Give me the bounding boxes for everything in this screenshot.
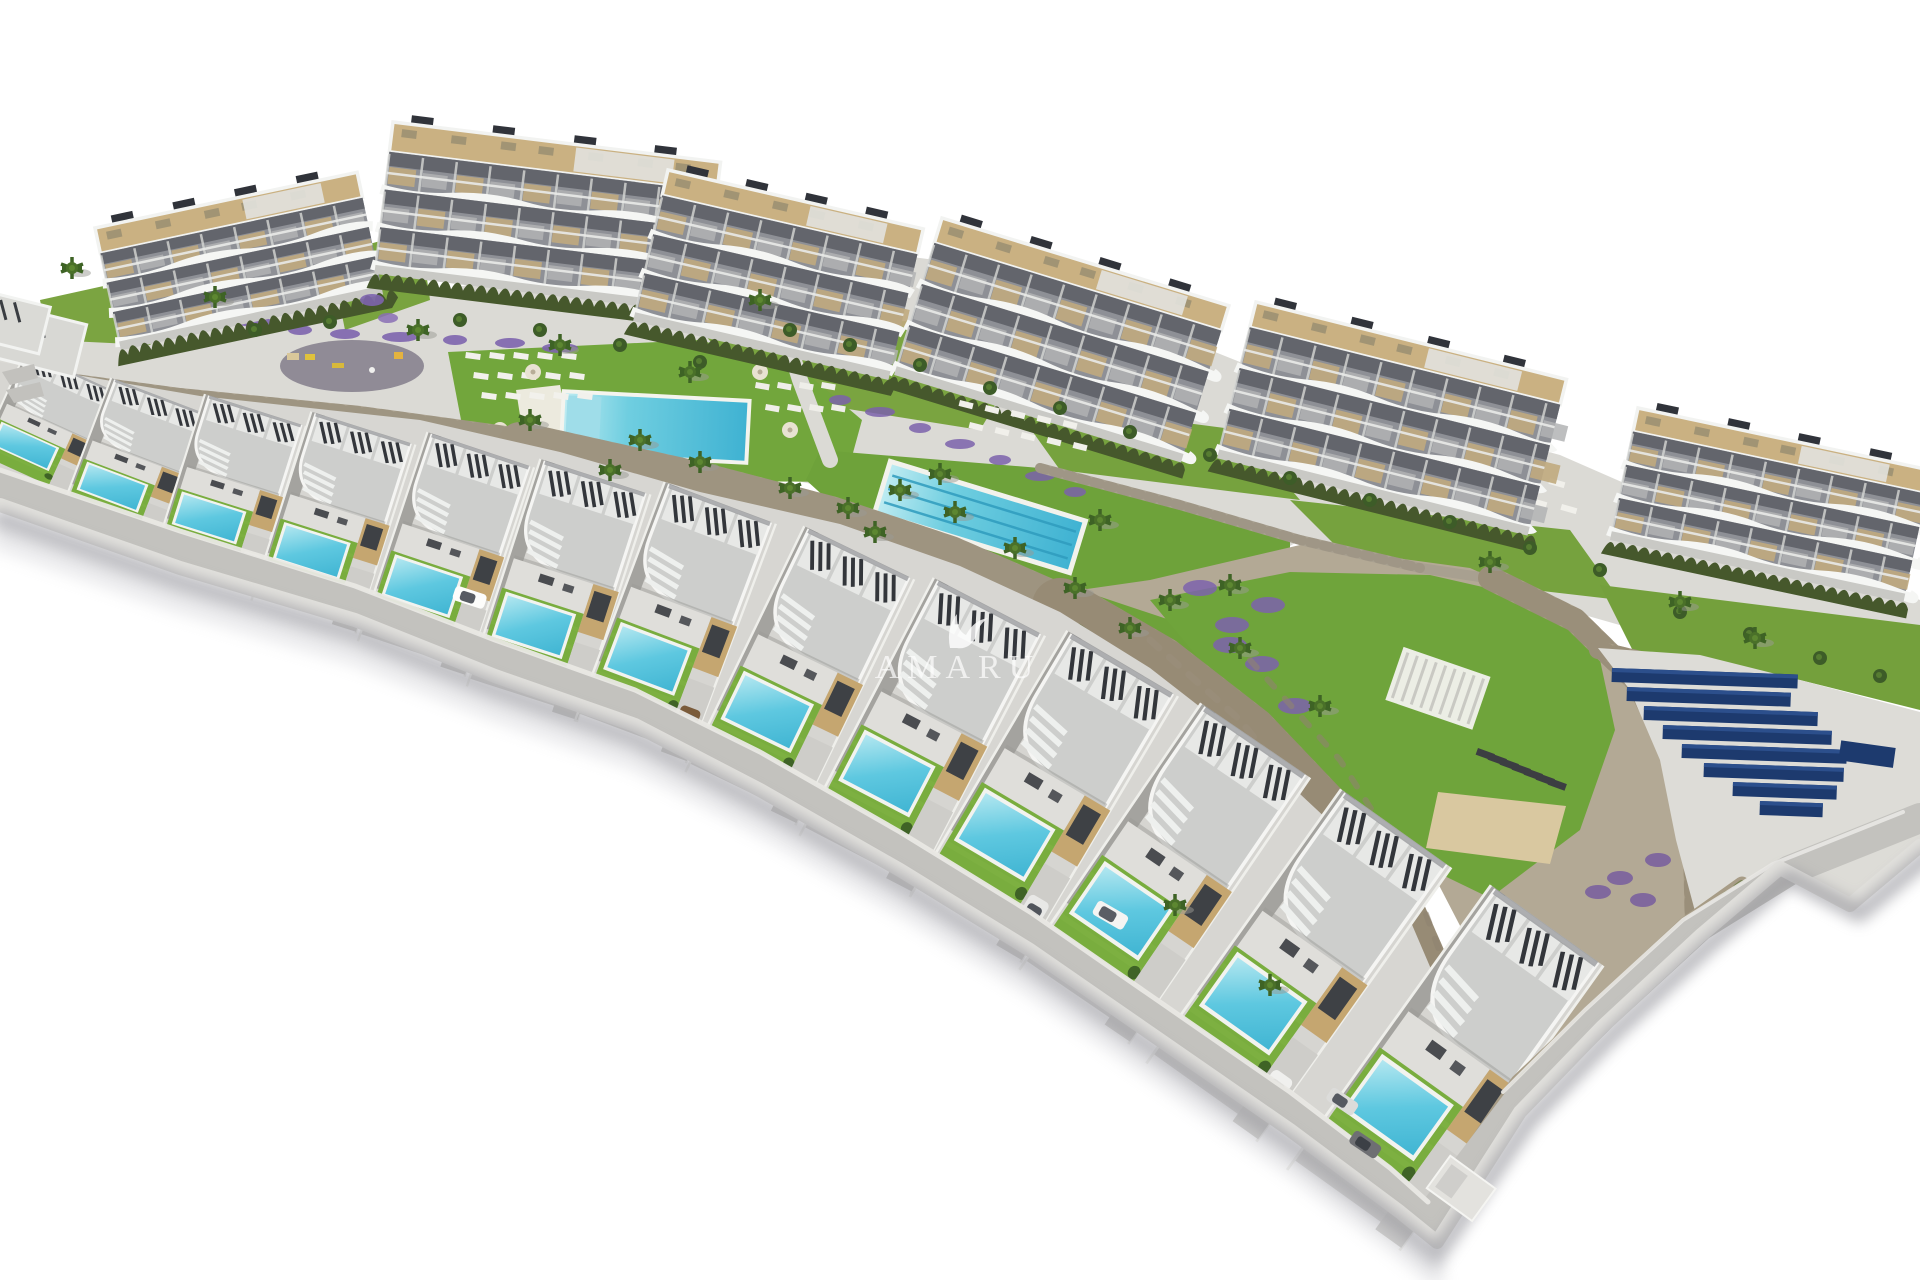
svg-text:AMARU: AMARU — [875, 649, 1042, 686]
